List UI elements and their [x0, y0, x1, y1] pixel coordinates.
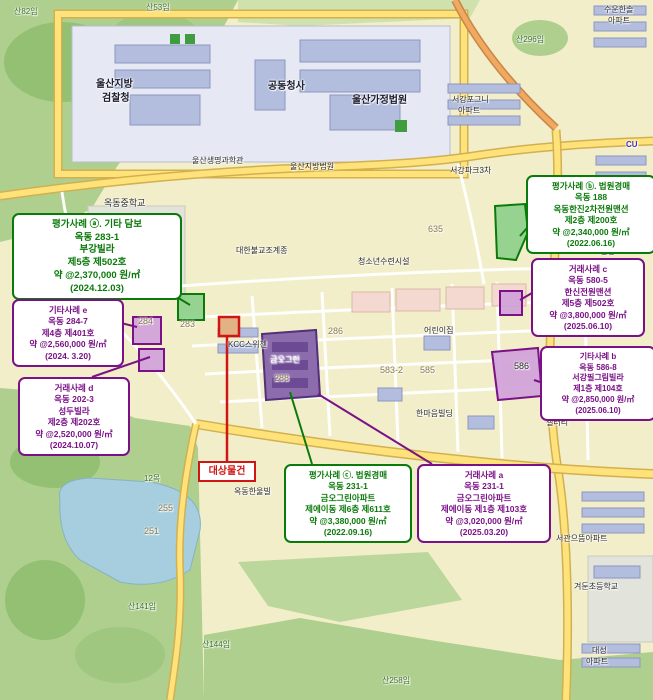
cadastral-map-view: 산82임산53임수운한솔아파트산296임울산지방검찰청공동청사울산가정법원서강포…	[0, 0, 653, 700]
case-line: 옥동 188	[530, 192, 652, 203]
case-box-sale-c: 거래사례 c옥동 580-5한신전원맨션제5층 제502호약 @3,800,00…	[531, 258, 645, 337]
case-box-sale-a: 거래사례 a옥동 231-1금오그린아파트제에이동 제1층 제103호약 @3,…	[417, 464, 551, 543]
case-line: 거래사례 c	[535, 264, 641, 275]
case-line: (2025.06.10)	[535, 321, 641, 332]
case-line: 옥동한진2차전원맨션	[530, 204, 652, 215]
case-line: 옥동 202-3	[22, 394, 126, 405]
case-line: (2024.12.03)	[16, 283, 178, 296]
case-line: 거래사례 a	[421, 470, 547, 481]
case-line: 제에이동 제1층 제103호	[421, 504, 547, 515]
geumo-green-apartment	[262, 330, 320, 400]
case-line: 제1층 제104호	[544, 384, 652, 395]
case-line: 약 @2,520,000 원/㎡	[22, 429, 126, 440]
parcel-other-e	[133, 317, 161, 344]
case-line: 약 @3,800,000 원/㎡	[535, 310, 641, 321]
case-line: 옥동 283-1	[16, 232, 178, 245]
case-line: 약 @2,850,000 원/㎡	[544, 395, 652, 406]
subject-parcel	[219, 317, 239, 336]
case-line: 옥동 231-1	[288, 481, 408, 492]
case-box-sale-d: 거래사례 d옥동 202-3성두빌라제2층 제202호약 @2,520,000 …	[18, 377, 130, 456]
parcel-sale-c	[500, 291, 522, 315]
case-line: (2025.06.10)	[544, 406, 652, 417]
case-line: 약 @2,370,000 원/㎡	[16, 270, 178, 283]
case-line: 금오그린아파트	[421, 493, 547, 504]
case-line: (2022.06.16)	[530, 238, 652, 249]
case-box-appraisal-a: 평가사례 ⓐ. 기타 담보옥동 283-1부강빌라제5층 제502호약 @2,3…	[12, 213, 182, 300]
case-box-appraisal-b: 평가사례 ⓑ. 법원경매옥동 188옥동한진2차전원맨션제2층 제200호약 @…	[526, 175, 653, 254]
case-line: 제에이동 제6층 제611호	[288, 504, 408, 515]
case-line: 평가사례 ⓒ. 법원경매	[288, 470, 408, 481]
case-line: 부강빌라	[16, 244, 178, 257]
case-line: 옥동 586-8	[544, 363, 652, 374]
case-line: (2022.09.16)	[288, 527, 408, 538]
case-line: 서강필그림빌라	[544, 373, 652, 384]
case-line: (2024.10.07)	[22, 440, 126, 451]
case-box-appraisal-c: 평가사례 ⓒ. 법원경매옥동 231-1금오그린아파트제에이동 제6층 제611…	[284, 464, 412, 543]
case-line: 평가사례 ⓑ. 법원경매	[530, 181, 652, 192]
case-line: 약 @2,340,000 원/㎡	[530, 227, 652, 238]
parcel-appraisal-a	[178, 294, 204, 320]
case-line: 기타사례 b	[544, 352, 652, 363]
case-line: 약 @2,560,000 원/㎡	[16, 339, 120, 350]
parcel-other-b	[492, 348, 542, 400]
case-line: 제5층 제502호	[535, 298, 641, 309]
case-line: 거래사례 d	[22, 383, 126, 394]
case-line: 제2층 제202호	[22, 417, 126, 428]
case-line: 제2층 제200호	[530, 215, 652, 226]
case-line: 옥동 231-1	[421, 481, 547, 492]
case-line: 약 @3,020,000 원/㎡	[421, 516, 547, 527]
case-line: 한신전원맨션	[535, 287, 641, 298]
case-line: (2024. 3.20)	[16, 351, 120, 362]
case-line: 옥동 284-7	[16, 316, 120, 327]
case-line: (2025.03.20)	[421, 527, 547, 538]
case-line: 제4층 제401호	[16, 328, 120, 339]
case-line: 제5층 제502호	[16, 257, 178, 270]
case-box-other-b: 기타사례 b옥동 586-8서강필그림빌라제1층 제104호약 @2,850,0…	[540, 346, 653, 421]
case-line: 금오그린아파트	[288, 493, 408, 504]
case-line: 옥동 580-5	[535, 275, 641, 286]
case-line: 약 @3,380,000 원/㎡	[288, 516, 408, 527]
case-box-other-e: 기타사례 e옥동 284-7제4층 제401호약 @2,560,000 원/㎡(…	[12, 299, 124, 367]
subject-property-box: 대상물건	[198, 461, 256, 482]
case-line: 성두빌라	[22, 406, 126, 417]
case-line: 기타사례 e	[16, 305, 120, 316]
case-line: 평가사례 ⓐ. 기타 담보	[16, 219, 178, 232]
